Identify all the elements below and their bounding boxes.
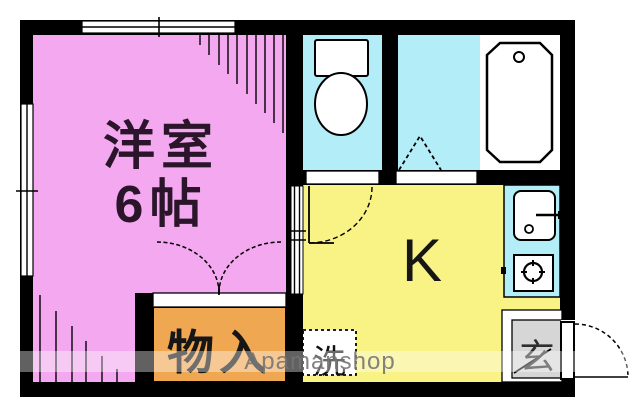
toilet-threshold [306,171,379,184]
sink-icon [514,191,563,240]
bathroom-floor [398,35,480,170]
bath-threshold [396,171,477,184]
wall-toilet-bath [382,20,398,185]
watermark-text: Apamanshop [244,348,395,376]
toilet-icon [315,40,368,135]
sliding-door-icon [288,186,306,294]
floorplan-image: 洋室 6帖 物入 K 玄 洗 Apamanshop [0,0,640,413]
bathtub-icon [487,43,552,162]
storage-threshold [153,293,286,307]
wall-bottom [20,382,575,397]
